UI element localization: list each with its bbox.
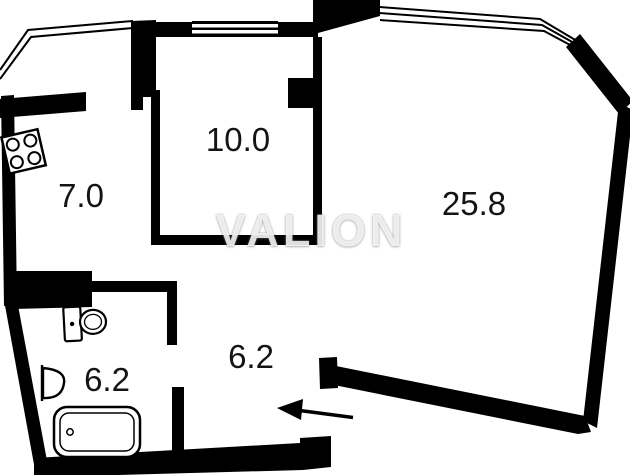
- entrance-arrow-icon: [277, 399, 353, 420]
- sink-icon: [42, 365, 64, 401]
- wall-bath-right-lower: [172, 387, 184, 465]
- room-area-label-bedroom: 10.0: [206, 121, 270, 159]
- toilet-icon: [63, 305, 107, 341]
- wall-bedroom-pier: [288, 78, 313, 108]
- room-area-label-bathroom: 6.2: [84, 361, 130, 399]
- balcony-railing-inner: [0, 28, 133, 79]
- wall-bedroom-top-right: [278, 22, 318, 37]
- wall-bedroom-top-left: [156, 22, 192, 37]
- wall-bath-top-thin: [92, 281, 177, 292]
- balcony-railing-outer: [0, 21, 133, 70]
- wall-bath-top-block: [8, 271, 92, 309]
- room-area-label-hallway: 6.2: [228, 338, 274, 376]
- balcony-railing: [0, 21, 133, 79]
- watermark: VALION: [216, 205, 407, 257]
- room-area-label-kitchen: 7.0: [58, 177, 104, 215]
- wall-topright-diagonal: [566, 34, 630, 114]
- bay-window-icon: [380, 7, 585, 53]
- wall-right: [583, 103, 630, 428]
- stove-icon: [1, 129, 45, 173]
- wall-top-corner: [313, 0, 380, 33]
- floorplan-canvas: 7.0 10.0 25.8 6.2 6.2 VALION: [0, 0, 630, 475]
- wall-bedroom-left: [151, 90, 160, 245]
- bedroom-window-icon: [192, 21, 278, 37]
- wall-lr-bottom: [334, 366, 591, 434]
- wall-bath-right-upper: [167, 281, 177, 345]
- bathtub-icon: [54, 407, 140, 457]
- room-area-label-living-room: 25.8: [442, 185, 506, 223]
